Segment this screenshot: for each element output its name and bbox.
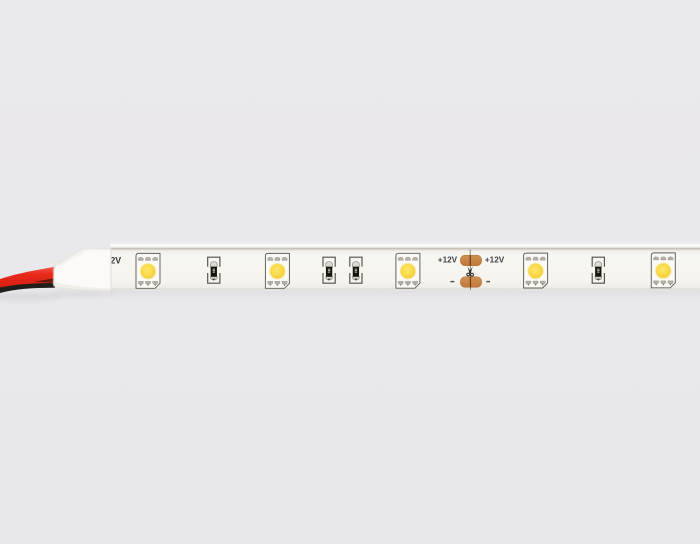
svg-text:+12V: +12V	[438, 256, 458, 265]
svg-text:+12V: +12V	[485, 256, 505, 265]
